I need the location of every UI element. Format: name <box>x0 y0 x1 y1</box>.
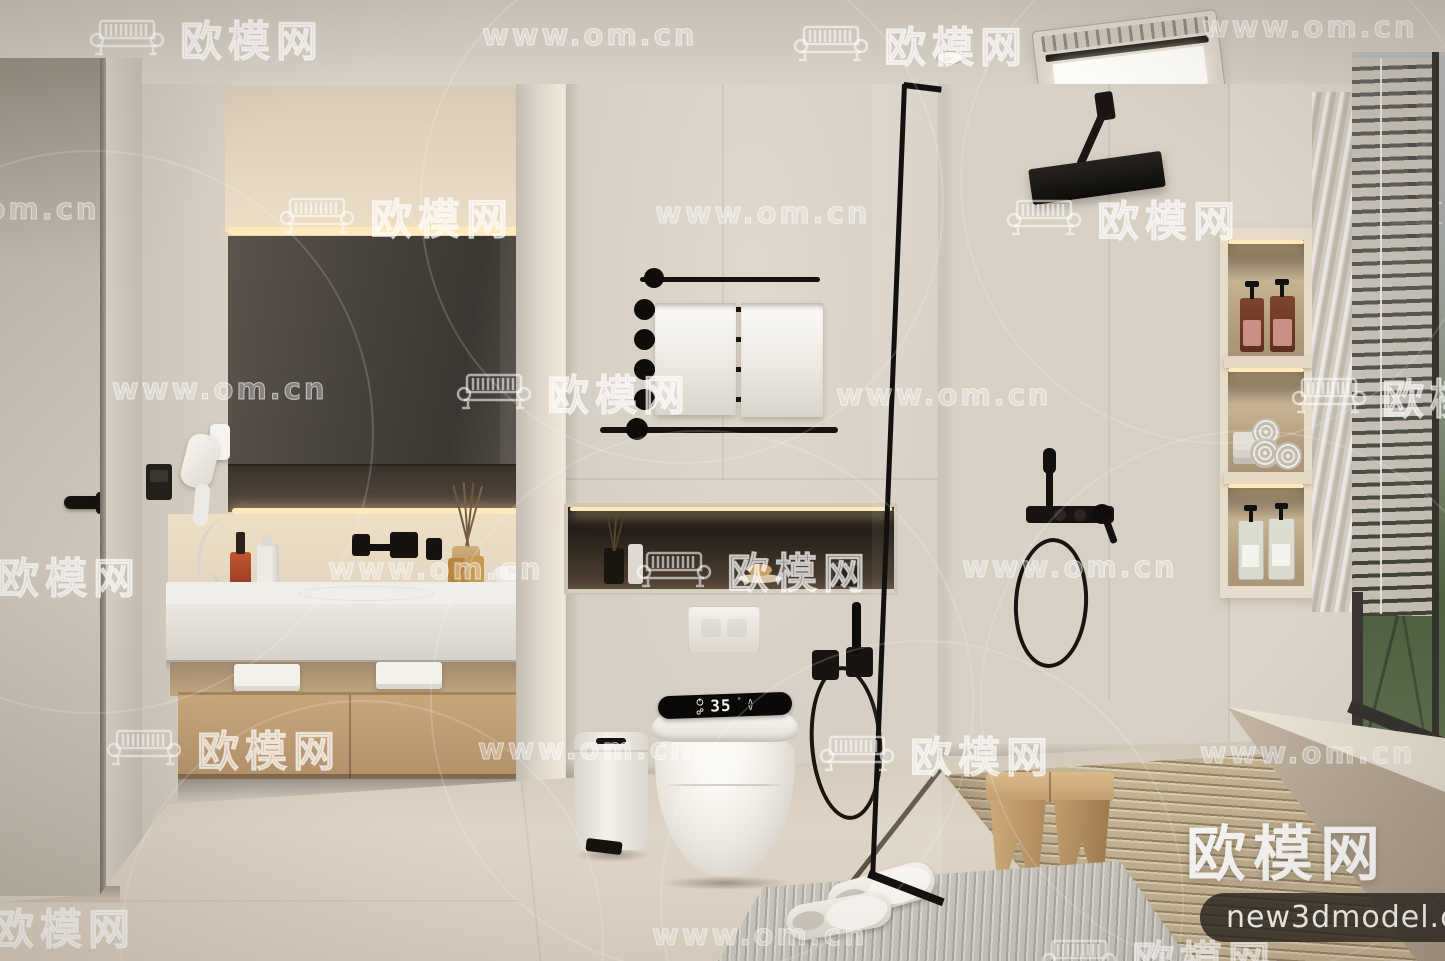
shampoo-bottle-amber-1 <box>1240 298 1264 352</box>
spray-icon <box>696 707 704 715</box>
tile-joint-vertical <box>722 84 724 480</box>
spray-bottle-nozzle <box>236 532 245 554</box>
trash-lid-seam <box>574 750 648 752</box>
towel-bar-knob-2 <box>634 299 655 320</box>
folded-towel-right <box>376 662 442 689</box>
clear-bottle-1 <box>1238 520 1264 580</box>
clear-bottle-2 <box>1268 518 1295 580</box>
countertop-apron <box>166 604 538 662</box>
pump-bottle-top <box>263 535 272 546</box>
toilet-seam <box>669 784 781 786</box>
door-jamb <box>106 58 142 898</box>
folded-towel-left <box>234 664 300 691</box>
partition-wall <box>516 84 568 874</box>
faucet-valve-left <box>352 534 370 556</box>
slide-rod <box>1046 454 1053 514</box>
mixer-knob-1 <box>1054 509 1066 521</box>
towel-roll-3 <box>1274 442 1302 470</box>
towel-bar-knob-1 <box>644 268 664 288</box>
site-badge: new3dmodel.com <box>1200 893 1445 942</box>
towel-bar-knob-6 <box>626 418 648 440</box>
degree-symbol: ° <box>737 695 741 705</box>
towel-bar-knob-4 <box>634 359 655 380</box>
shelf-cell-top <box>1228 240 1304 356</box>
wall-switch <box>146 464 172 500</box>
mirror-shelf <box>228 464 532 512</box>
corner-shading <box>566 84 580 784</box>
bathroom-render: 35 ° ∧ ∨ 欧模网 欧模网 欧模网 欧模网 <box>0 0 1445 961</box>
stool-seat <box>986 772 1114 802</box>
temp-down-arrow: ∨ <box>747 704 754 710</box>
mixer-knob-2 <box>1074 509 1086 521</box>
toilet-display: 35 ° ∧ ∨ <box>658 692 793 720</box>
shelf-cell-middle <box>1228 368 1304 472</box>
window-frame-right <box>1432 52 1439 752</box>
flush-plate <box>688 606 760 652</box>
shelf-cell-bottom <box>1228 484 1304 586</box>
niche-led <box>570 507 892 511</box>
vanity-cabinet <box>178 692 522 779</box>
towel-bar-knob-3 <box>634 329 655 350</box>
floor-joint-1 <box>520 778 541 961</box>
power-icon <box>696 698 704 706</box>
recessed-light <box>936 50 964 65</box>
niche-bottle <box>628 544 643 584</box>
niche-pastry <box>748 564 772 576</box>
shelf-divider-2 <box>1224 472 1312 484</box>
toilet-base-shadow <box>661 876 791 890</box>
trash-can <box>574 728 650 862</box>
faucet-valve-center <box>390 532 418 558</box>
toilet-temperature: 35 <box>710 696 732 716</box>
hanging-towel-right <box>741 303 823 417</box>
glass-panel <box>872 84 942 884</box>
sink-basin-edge <box>298 586 434 601</box>
mirror <box>228 236 532 466</box>
under-counter-shelf <box>170 662 536 696</box>
window <box>1352 52 1445 748</box>
smart-toilet: 35 ° ∧ ∨ <box>643 690 807 892</box>
shampoo-bottle-amber-2 <box>1270 296 1295 352</box>
cove-light <box>228 227 534 235</box>
bidet-wand <box>852 602 861 654</box>
niche-diffuser <box>604 548 624 584</box>
vanity-bulkhead <box>225 86 537 232</box>
trash-handle-slot <box>596 738 626 744</box>
toilet-body <box>655 730 795 876</box>
watermark-brand-large: 欧模网 <box>1186 806 1387 893</box>
faucet-valve-right <box>426 538 442 560</box>
reed-diffuser-sticks <box>452 484 482 548</box>
niche-lip <box>568 589 894 593</box>
venetian-blinds <box>1352 58 1432 616</box>
wall-niche-interior <box>568 507 894 589</box>
textured-tile-strip <box>1312 92 1356 612</box>
towel-bar-1 <box>640 277 820 282</box>
niche-jar <box>834 562 860 586</box>
hanging-towel-left <box>655 303 736 415</box>
shelf-divider-1 <box>1224 356 1312 368</box>
cabinet-seam <box>349 695 351 779</box>
switch-button <box>150 470 168 482</box>
towel-bar-knob-5 <box>634 389 655 410</box>
blind-cord <box>1380 58 1382 614</box>
door-panel <box>0 58 100 896</box>
